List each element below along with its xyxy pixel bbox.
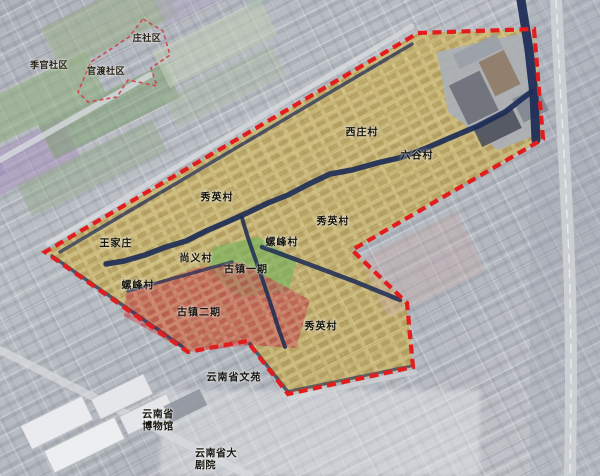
- map-overlay-svg: [0, 0, 600, 476]
- road: [0, 350, 250, 476]
- roof-dark: [163, 389, 207, 423]
- warehouse-roofs: [21, 348, 208, 476]
- map-viewport: 庄社区 季官社区 官渡社区 西庄村 六谷村 秀英村 秀英村 王家庄 螺峰村 尚义…: [0, 0, 600, 476]
- highway-east: [556, 0, 571, 476]
